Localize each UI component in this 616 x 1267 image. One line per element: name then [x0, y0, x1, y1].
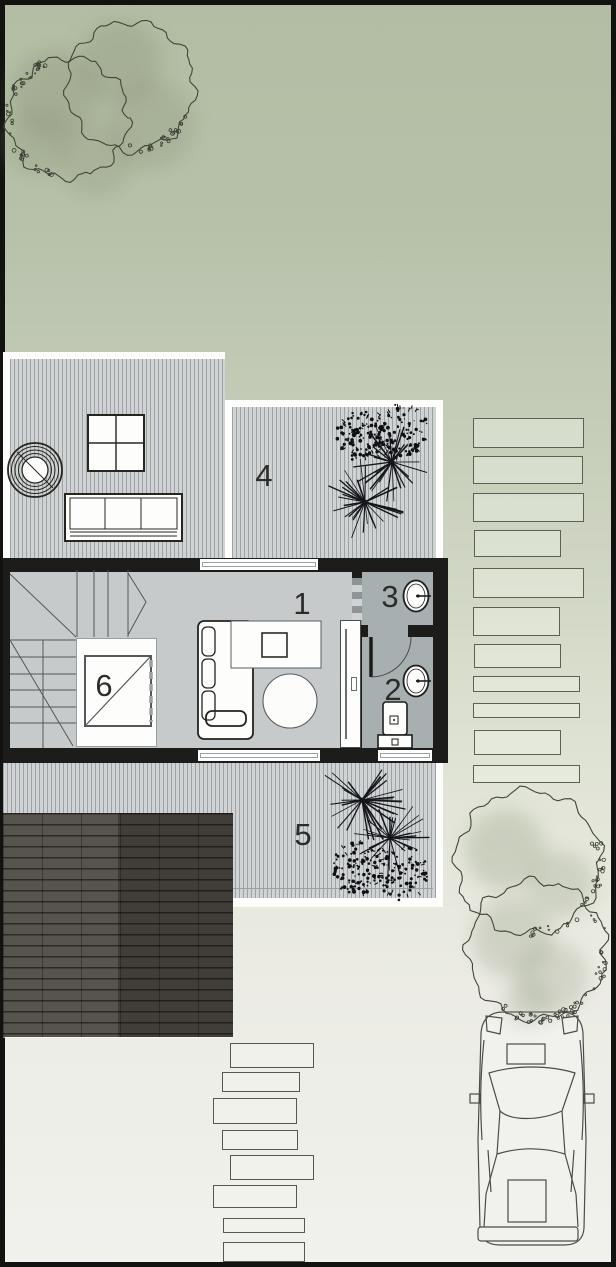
cabinet-rail	[345, 629, 347, 739]
window-north	[200, 559, 318, 570]
stepping-stone	[473, 765, 580, 783]
stepping-stone	[473, 568, 584, 598]
lower-deck-edge-line	[230, 888, 433, 889]
room-label-5: 5	[294, 819, 311, 850]
site-plan-canvas: 1 2 3 4 5 6	[0, 0, 616, 1267]
upper-deck-boards-left	[10, 359, 225, 558]
stepping-stone	[474, 644, 561, 668]
room-label-2: 2	[384, 674, 401, 705]
wc-bath-dividing-wall	[408, 625, 433, 637]
stair-void-box	[76, 638, 157, 747]
stepping-stone	[473, 418, 584, 448]
room-label-4: 4	[255, 460, 272, 491]
window-south-bath	[378, 750, 432, 761]
trees-top-left	[4, 20, 198, 198]
parked-car	[470, 1012, 594, 1245]
stepping-stone	[230, 1043, 314, 1068]
stepping-stone	[473, 676, 580, 692]
stepping-stone	[473, 607, 560, 636]
stepping-stone	[473, 456, 583, 484]
stepping-stone	[230, 1155, 314, 1180]
stepping-stone	[213, 1098, 297, 1124]
room-label-3: 3	[381, 581, 398, 612]
stepping-stone	[474, 730, 561, 755]
wc-bath-dividing-wall-stub	[362, 625, 368, 637]
cabinet-handle	[351, 677, 357, 691]
stepping-stone	[473, 703, 580, 718]
wc-sliding-opening	[352, 578, 362, 625]
stepping-stone	[474, 530, 561, 557]
room-label-6: 6	[95, 670, 112, 701]
window-south-living	[198, 750, 320, 761]
stepping-stone	[223, 1242, 305, 1262]
stepping-stone	[213, 1185, 297, 1208]
stepping-stone	[222, 1130, 298, 1150]
room-label-1: 1	[293, 588, 310, 619]
stepping-stone	[223, 1218, 305, 1233]
stepping-stone	[222, 1072, 300, 1092]
trees-bottom-right	[452, 786, 609, 1026]
wardrobe-cabinet	[340, 620, 361, 748]
stepping-stone	[473, 493, 584, 522]
tiled-roof	[3, 813, 233, 1037]
